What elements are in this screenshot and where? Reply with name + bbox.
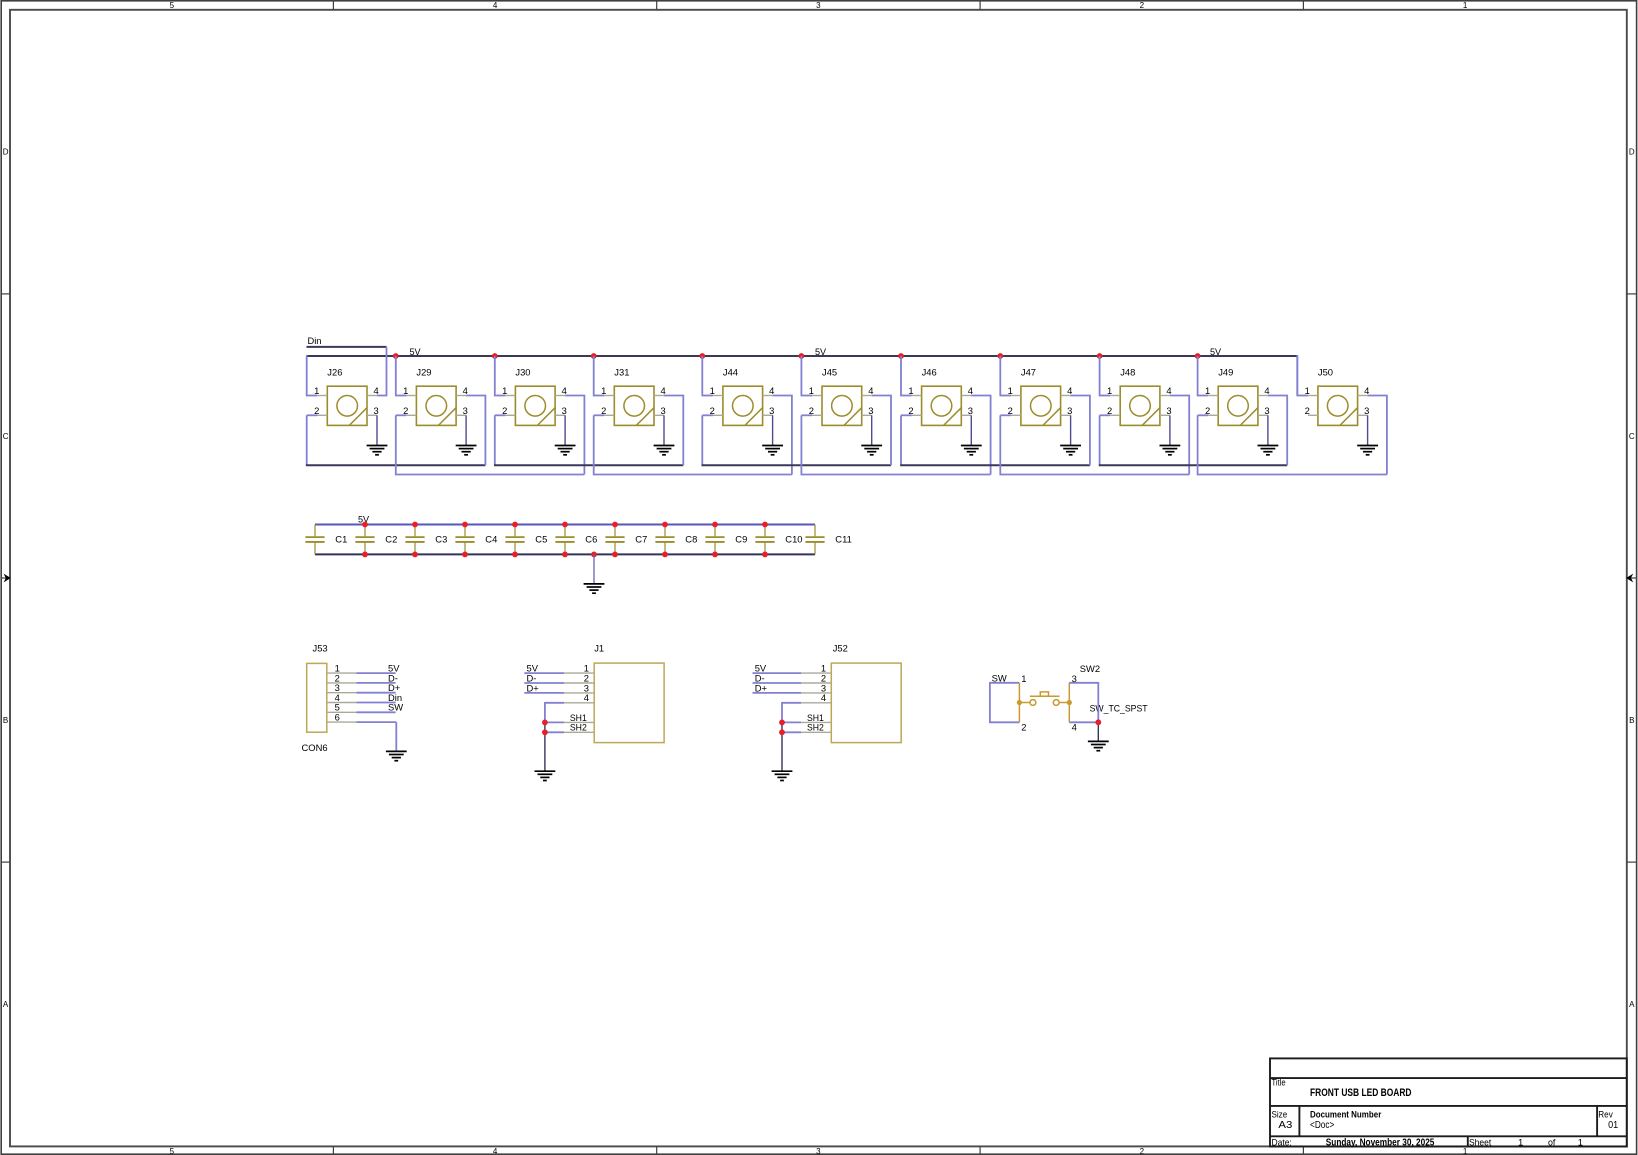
- svg-text:01: 01: [1608, 1120, 1618, 1131]
- svg-text:3: 3: [868, 405, 873, 416]
- svg-text:C11: C11: [835, 534, 852, 545]
- svg-text:1: 1: [809, 385, 814, 396]
- svg-text:1: 1: [1463, 1, 1468, 10]
- svg-text:3: 3: [769, 405, 774, 416]
- svg-text:4: 4: [493, 1, 498, 10]
- svg-text:J49: J49: [1218, 366, 1233, 377]
- svg-text:C9: C9: [735, 534, 747, 545]
- svg-text:4: 4: [1364, 385, 1369, 396]
- svg-text:2: 2: [908, 405, 913, 416]
- svg-text:1: 1: [1518, 1137, 1523, 1148]
- svg-text:1: 1: [1021, 673, 1026, 684]
- svg-text:3: 3: [1166, 405, 1171, 416]
- svg-text:3: 3: [816, 1, 821, 10]
- svg-text:C1: C1: [335, 534, 347, 545]
- svg-text:J1: J1: [594, 643, 604, 654]
- svg-text:2: 2: [1008, 405, 1013, 416]
- svg-text:2: 2: [710, 405, 715, 416]
- svg-text:SW: SW: [992, 672, 1007, 683]
- svg-text:J48: J48: [1120, 366, 1135, 377]
- svg-text:D: D: [3, 148, 9, 157]
- svg-text:Size: Size: [1272, 1109, 1288, 1120]
- svg-text:C6: C6: [585, 534, 597, 545]
- svg-text:SW2: SW2: [1080, 663, 1100, 674]
- svg-text:2: 2: [1021, 722, 1026, 733]
- svg-text:SH2: SH2: [807, 722, 824, 733]
- svg-text:6: 6: [335, 712, 340, 723]
- svg-text:2: 2: [809, 405, 814, 416]
- svg-text:4: 4: [769, 385, 774, 396]
- svg-text:3: 3: [463, 405, 468, 416]
- svg-text:Din: Din: [308, 335, 322, 346]
- svg-text:4: 4: [821, 692, 826, 703]
- svg-text:3: 3: [968, 405, 973, 416]
- svg-text:B: B: [3, 716, 8, 725]
- svg-text:J31: J31: [614, 366, 629, 377]
- svg-text:J46: J46: [922, 366, 937, 377]
- svg-text:4: 4: [374, 385, 379, 396]
- svg-text:C7: C7: [635, 534, 647, 545]
- svg-text:4: 4: [1166, 385, 1171, 396]
- svg-text:2: 2: [403, 405, 408, 416]
- svg-text:J47: J47: [1021, 366, 1036, 377]
- svg-text:3: 3: [1067, 405, 1072, 416]
- svg-text:4: 4: [493, 1147, 498, 1155]
- svg-text:4: 4: [562, 385, 567, 396]
- svg-text:1: 1: [1463, 1147, 1468, 1155]
- svg-text:4: 4: [1067, 385, 1072, 396]
- svg-text:1: 1: [1008, 385, 1013, 396]
- svg-text:J29: J29: [416, 366, 431, 377]
- svg-text:C3: C3: [435, 534, 447, 545]
- svg-text:J44: J44: [723, 366, 738, 377]
- svg-text:Date:: Date:: [1272, 1137, 1292, 1148]
- svg-text:A3: A3: [1278, 1120, 1292, 1131]
- svg-text:A: A: [1629, 1000, 1635, 1009]
- svg-text:1: 1: [502, 385, 507, 396]
- svg-text:1: 1: [1305, 385, 1310, 396]
- svg-text:CON6: CON6: [302, 742, 328, 753]
- svg-text:4: 4: [1264, 385, 1269, 396]
- svg-text:5: 5: [170, 1, 175, 10]
- svg-text:Sunday, November 30, 2025: Sunday, November 30, 2025: [1326, 1137, 1435, 1148]
- svg-text:1: 1: [601, 385, 606, 396]
- svg-text:C4: C4: [485, 534, 497, 545]
- svg-text:3: 3: [816, 1147, 821, 1155]
- svg-text:Rev: Rev: [1598, 1109, 1613, 1120]
- svg-text:2: 2: [1140, 1, 1145, 10]
- svg-text:of: of: [1548, 1137, 1556, 1148]
- svg-text:4: 4: [968, 385, 973, 396]
- svg-text:1: 1: [710, 385, 715, 396]
- svg-text:2: 2: [502, 405, 507, 416]
- svg-text:B: B: [1629, 716, 1634, 725]
- svg-text:1: 1: [908, 385, 913, 396]
- svg-text:5: 5: [170, 1147, 175, 1155]
- svg-text:J30: J30: [515, 366, 530, 377]
- svg-text:2: 2: [1205, 405, 1210, 416]
- svg-text:3: 3: [1364, 405, 1369, 416]
- svg-text:J50: J50: [1318, 366, 1333, 377]
- svg-text:2: 2: [314, 405, 319, 416]
- svg-text:1: 1: [403, 385, 408, 396]
- svg-text:D+: D+: [755, 682, 768, 693]
- svg-text:4: 4: [868, 385, 873, 396]
- svg-text:Title: Title: [1272, 1078, 1286, 1089]
- svg-text:4: 4: [584, 692, 589, 703]
- svg-text:2: 2: [1140, 1147, 1145, 1155]
- svg-text:J26: J26: [327, 366, 342, 377]
- svg-text:3: 3: [374, 405, 379, 416]
- svg-text:4: 4: [1072, 722, 1077, 733]
- svg-text:1: 1: [1578, 1137, 1583, 1148]
- svg-text:D: D: [1629, 148, 1635, 157]
- svg-text:<Doc>: <Doc>: [1310, 1120, 1335, 1131]
- svg-text:2: 2: [1305, 405, 1310, 416]
- svg-text:D+: D+: [527, 682, 540, 693]
- svg-text:SH2: SH2: [570, 722, 587, 733]
- svg-text:C8: C8: [685, 534, 697, 545]
- svg-text:C: C: [1629, 432, 1635, 441]
- svg-text:1: 1: [1107, 385, 1112, 396]
- svg-text:J52: J52: [833, 643, 848, 654]
- svg-text:Document Number: Document Number: [1310, 1109, 1382, 1120]
- svg-text:C2: C2: [385, 534, 397, 545]
- svg-text:2: 2: [601, 405, 606, 416]
- svg-text:1: 1: [314, 385, 319, 396]
- svg-text:C: C: [3, 432, 9, 441]
- svg-text:3: 3: [562, 405, 567, 416]
- svg-text:J45: J45: [822, 366, 837, 377]
- svg-text:1: 1: [1205, 385, 1210, 396]
- svg-text:A: A: [3, 1000, 9, 1009]
- svg-text:3: 3: [661, 405, 666, 416]
- svg-text:4: 4: [463, 385, 468, 396]
- svg-text:SW: SW: [388, 702, 403, 713]
- svg-text:5V: 5V: [410, 346, 422, 357]
- svg-text:2: 2: [1107, 405, 1112, 416]
- svg-text:C5: C5: [535, 534, 547, 545]
- svg-text:C10: C10: [785, 534, 802, 545]
- svg-text:5V: 5V: [815, 346, 827, 357]
- svg-text:3: 3: [1264, 405, 1269, 416]
- svg-text:Sheet: Sheet: [1469, 1137, 1492, 1148]
- svg-text:5V: 5V: [1210, 346, 1222, 357]
- svg-text:FRONT USB LED BOARD: FRONT USB LED BOARD: [1310, 1087, 1412, 1099]
- svg-text:4: 4: [661, 385, 666, 396]
- svg-text:J53: J53: [313, 643, 328, 654]
